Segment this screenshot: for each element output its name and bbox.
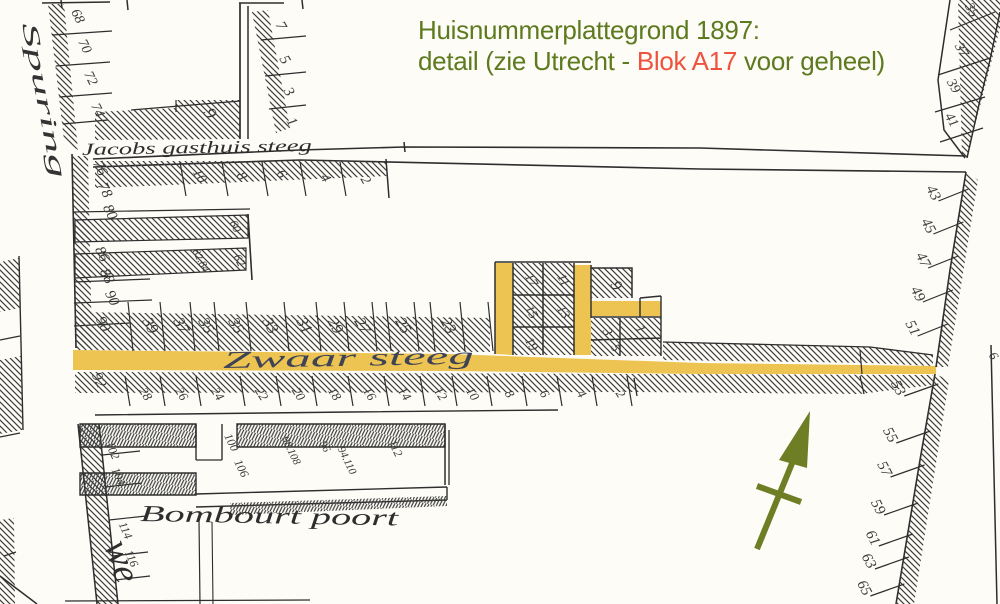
svg-text:Bombourt poort: Bombourt poort [140,501,399,531]
svg-text:detail (zie Utrecht - Blok A17: detail (zie Utrecht - Blok A17 voor gehe… [418,46,885,76]
svg-text:Huisnummerplattegrond 1897:: Huisnummerplattegrond 1897: [418,15,760,45]
svg-text:Zwaar steeg: Zwaar steeg [223,344,474,374]
